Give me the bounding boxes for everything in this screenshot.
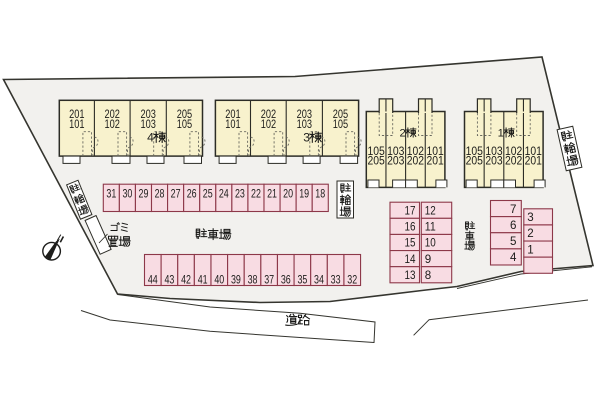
- svg-text:39: 39: [231, 273, 241, 287]
- svg-text:105: 105: [333, 117, 349, 131]
- svg-text:34: 34: [314, 273, 324, 287]
- svg-text:201: 201: [525, 154, 542, 168]
- svg-text:32: 32: [347, 273, 357, 287]
- svg-text:19: 19: [299, 186, 309, 200]
- svg-text:16: 16: [405, 221, 416, 234]
- svg-text:44: 44: [148, 273, 158, 287]
- svg-text:21: 21: [267, 186, 277, 200]
- svg-text:202: 202: [407, 154, 424, 168]
- svg-text:205: 205: [466, 154, 484, 168]
- svg-text:7: 7: [510, 203, 516, 216]
- svg-text:30: 30: [122, 186, 132, 200]
- svg-text:42: 42: [181, 273, 191, 287]
- svg-text:26: 26: [187, 186, 197, 200]
- svg-text:33: 33: [331, 273, 341, 287]
- svg-text:201: 201: [426, 154, 443, 168]
- svg-text:13: 13: [405, 269, 416, 282]
- svg-text:4: 4: [510, 251, 517, 264]
- svg-text:6: 6: [510, 219, 516, 232]
- svg-text:202: 202: [505, 154, 522, 168]
- svg-text:18: 18: [315, 186, 325, 200]
- svg-text:2: 2: [399, 128, 405, 140]
- svg-text:101: 101: [225, 117, 240, 131]
- svg-text:15: 15: [405, 237, 416, 250]
- svg-text:9: 9: [425, 253, 431, 266]
- svg-text:23: 23: [235, 186, 245, 200]
- svg-text:103: 103: [297, 117, 313, 131]
- svg-text:103: 103: [141, 117, 157, 131]
- svg-text:1: 1: [498, 128, 504, 140]
- svg-text:105: 105: [177, 117, 193, 131]
- svg-text:41: 41: [198, 273, 208, 287]
- svg-text:40: 40: [214, 273, 224, 287]
- svg-text:10: 10: [425, 237, 436, 250]
- svg-text:28: 28: [155, 186, 165, 200]
- svg-text:29: 29: [139, 186, 149, 200]
- svg-text:2: 2: [527, 227, 533, 240]
- svg-text:102: 102: [105, 117, 120, 131]
- svg-text:102: 102: [261, 117, 276, 131]
- svg-text:203: 203: [387, 154, 405, 168]
- svg-text:43: 43: [164, 273, 174, 287]
- svg-text:205: 205: [367, 154, 385, 168]
- svg-text:38: 38: [248, 273, 258, 287]
- svg-text:1: 1: [527, 243, 533, 256]
- svg-text:4: 4: [147, 130, 154, 144]
- svg-text:17: 17: [405, 205, 416, 218]
- svg-text:3: 3: [303, 130, 310, 144]
- svg-text:31: 31: [106, 186, 116, 200]
- svg-text:37: 37: [264, 273, 274, 287]
- svg-text:14: 14: [405, 253, 416, 266]
- svg-text:20: 20: [283, 186, 293, 200]
- svg-text:12: 12: [425, 205, 436, 218]
- svg-text:35: 35: [297, 273, 307, 287]
- svg-text:8: 8: [425, 269, 431, 282]
- svg-text:11: 11: [425, 221, 436, 234]
- svg-text:27: 27: [171, 186, 181, 200]
- svg-text:101: 101: [69, 117, 84, 131]
- svg-text:203: 203: [485, 154, 503, 168]
- svg-text:36: 36: [281, 273, 291, 287]
- svg-text:5: 5: [510, 235, 516, 248]
- svg-text:3: 3: [527, 211, 533, 224]
- svg-text:25: 25: [203, 186, 213, 200]
- svg-text:24: 24: [219, 186, 229, 200]
- svg-text:22: 22: [251, 186, 261, 200]
